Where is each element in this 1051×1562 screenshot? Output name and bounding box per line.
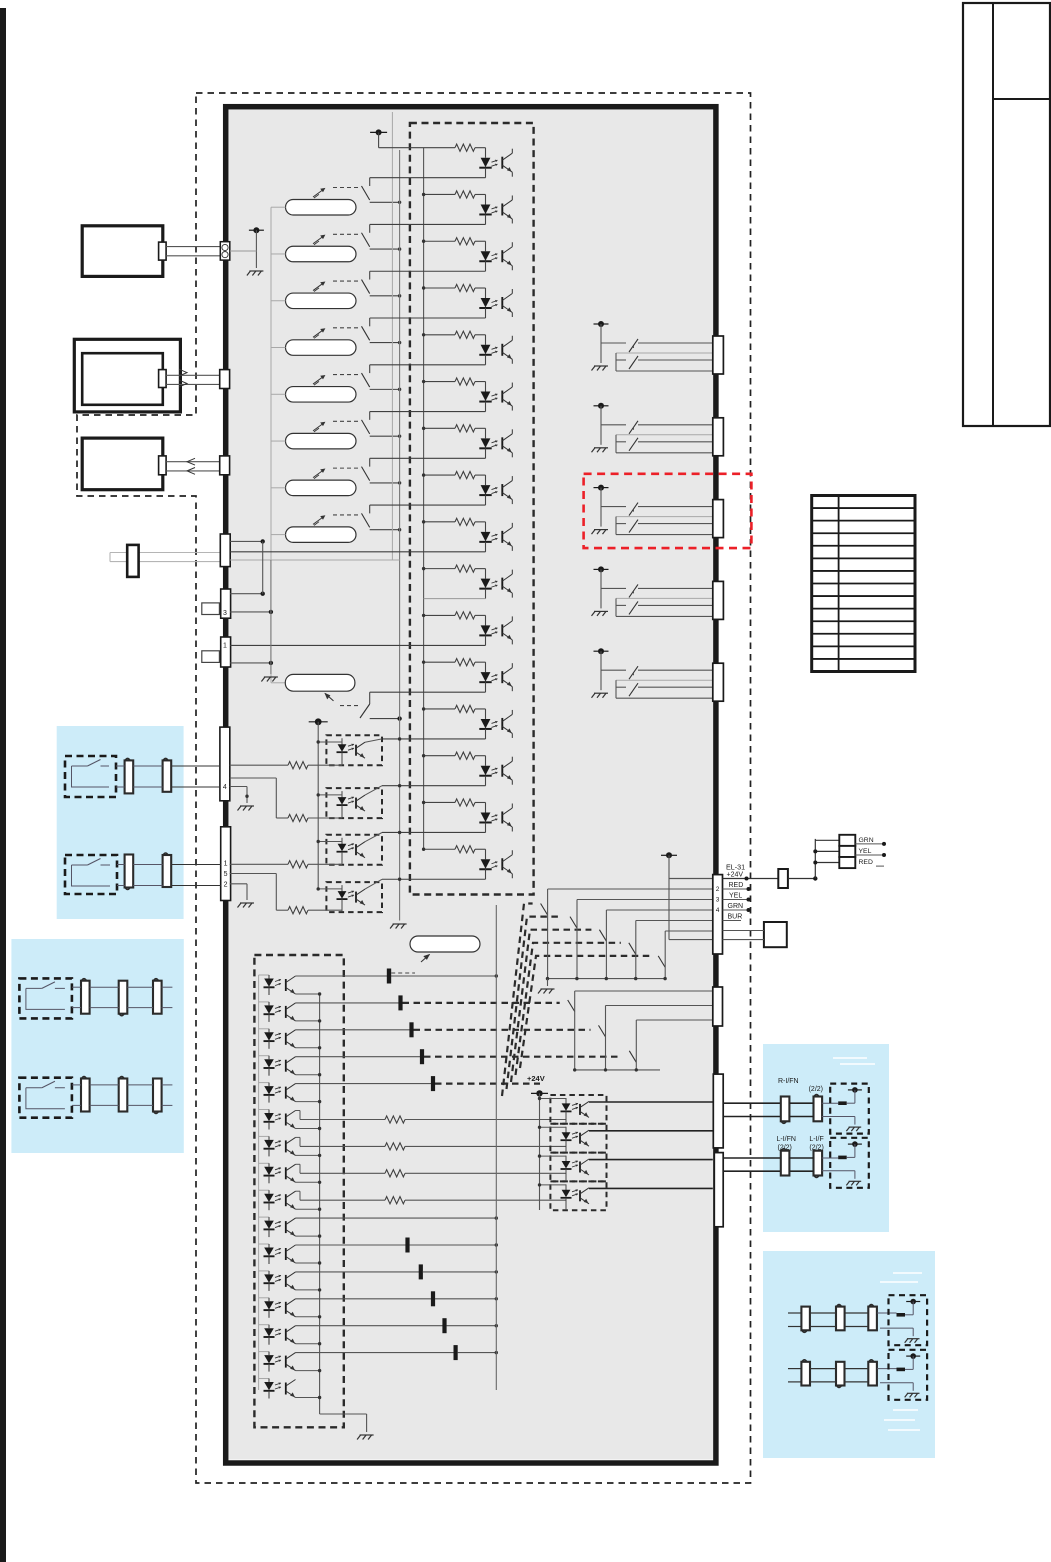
svg-text:+24V: +24V	[527, 1074, 545, 1083]
svg-text:3: 3	[716, 897, 720, 904]
svg-text:GRN: GRN	[728, 903, 744, 910]
svg-text:L-I/FN: L-I/FN	[777, 1136, 796, 1143]
svg-text:4: 4	[716, 907, 720, 914]
svg-text:R-I/FN: R-I/FN	[778, 1078, 799, 1085]
svg-text:BUR: BUR	[728, 914, 743, 921]
svg-text:4: 4	[223, 784, 227, 791]
svg-text:YEL: YEL	[729, 893, 742, 900]
svg-text:YEL: YEL	[859, 848, 872, 855]
svg-text:2: 2	[224, 881, 228, 888]
svg-text:RED: RED	[859, 859, 873, 866]
svg-text:(2/2): (2/2)	[809, 1086, 823, 1093]
svg-text:EL-31: EL-31	[726, 863, 745, 872]
svg-text:3: 3	[223, 610, 227, 617]
svg-text:RED: RED	[729, 882, 744, 889]
svg-text:2: 2	[716, 886, 720, 893]
svg-text:+24V: +24V	[727, 872, 744, 879]
svg-text:1: 1	[224, 860, 228, 867]
svg-text:1: 1	[223, 643, 227, 650]
svg-text:GRN: GRN	[859, 837, 874, 844]
svg-text:5: 5	[224, 871, 228, 878]
svg-text:L-I/F: L-I/F	[809, 1136, 823, 1143]
